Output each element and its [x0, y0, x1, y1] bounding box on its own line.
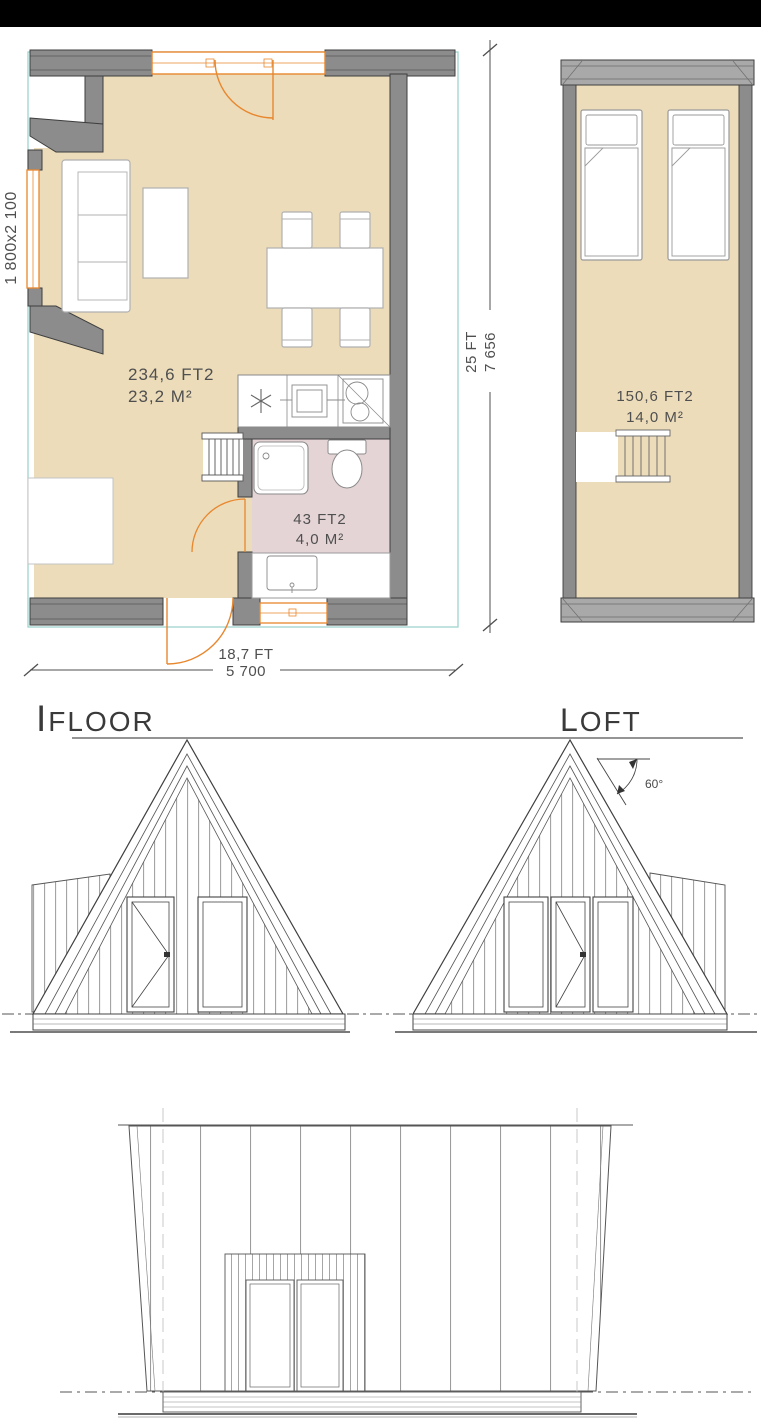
- wall-left-upper: [85, 76, 103, 124]
- bathroom-area-m: 4,0 M²: [296, 531, 345, 548]
- door-handle: [164, 952, 170, 957]
- window-dimension-label: 1 800x2 100: [3, 191, 20, 285]
- rear-elevation: 60°: [395, 740, 757, 1032]
- rear-door: [551, 897, 590, 1012]
- window-jamb-lower: [28, 288, 42, 306]
- wall-left-step-upper: [30, 118, 103, 152]
- living-area-ft: 234,6 FT2: [128, 365, 215, 384]
- wall-right: [390, 74, 407, 598]
- bed-blanket: [585, 148, 638, 256]
- shower: [254, 442, 308, 494]
- wall-bottom-left: [30, 598, 163, 625]
- wardrobe: [28, 478, 113, 564]
- wall-bottom-right: [327, 598, 407, 625]
- bed-pillow: [586, 115, 637, 145]
- window-jamb-upper: [28, 150, 42, 170]
- toilet-bowl: [332, 450, 362, 488]
- roof-angle-label: 60°: [645, 777, 663, 791]
- wall-bathroom-left-lower: [238, 552, 252, 598]
- chair: [282, 308, 312, 347]
- roof-angle-annotation: 60°: [597, 758, 663, 805]
- loft-title: LOFT: [560, 702, 642, 738]
- loft-plan: 150,6 FT2 14,0 M²: [561, 60, 754, 622]
- first-floor-plan: 234,6 FT2 23,2 M² 43 FT2 4,0 M²: [27, 50, 458, 664]
- stairs-first-floor: [202, 433, 243, 481]
- loft-wall-bottom-band: [561, 598, 754, 622]
- coffee-table: [143, 188, 188, 278]
- chair: [282, 212, 312, 248]
- loft-wall-left: [563, 85, 576, 598]
- bed-pillow: [673, 115, 724, 145]
- rear-window-left: [504, 897, 548, 1012]
- door-handle: [580, 952, 586, 957]
- bed-blanket: [672, 148, 725, 256]
- base-platform: [413, 1014, 727, 1030]
- plan-labels: IFLOOR LOFT: [36, 698, 743, 739]
- base-platform: [33, 1014, 345, 1030]
- kitchen-counter: [238, 375, 390, 427]
- chair: [340, 308, 370, 347]
- side-wall: [129, 1126, 611, 1391]
- loft-wall-top-band: [561, 60, 754, 85]
- architectural-drawing-page: 234,6 FT2 23,2 M² 43 FT2 4,0 M² 1 800x2 …: [0, 0, 761, 1427]
- loft-area-ft: 150,6 FT2: [616, 388, 693, 405]
- bath-sink: [267, 556, 317, 590]
- loft-wall-right: [739, 85, 752, 598]
- loft-area-m: 14,0 M²: [626, 409, 684, 426]
- entry-door-right: [297, 1280, 343, 1391]
- depth-ft-label: 25 FT: [463, 331, 480, 373]
- bathroom-area-ft: 43 FT2: [293, 511, 347, 528]
- drawing-canvas: 234,6 FT2 23,2 M² 43 FT2 4,0 M² 1 800x2 …: [0, 0, 761, 1427]
- sofa-cushions: [78, 172, 127, 300]
- chair: [340, 212, 370, 248]
- width-ft-label: 18,7 FT: [218, 646, 273, 663]
- width-mm-label: 5 700: [226, 663, 266, 680]
- top-black-bar: [0, 0, 761, 27]
- wall-bottom-mid: [233, 598, 260, 625]
- entry-door-left: [246, 1280, 294, 1391]
- side-elevation: [60, 1108, 752, 1417]
- dining-table: [267, 248, 383, 308]
- stair-landing: [576, 432, 618, 482]
- front-door: [127, 897, 174, 1012]
- entrance-porch: [225, 1254, 365, 1391]
- wall-top-left: [30, 50, 152, 76]
- front-window: [198, 897, 247, 1012]
- wall-top-right: [325, 50, 455, 76]
- living-area-m: 23,2 M²: [128, 387, 193, 406]
- depth-mm-label: 7 656: [482, 332, 499, 372]
- first-floor-title: IFLOOR: [36, 698, 155, 739]
- rear-window-right: [593, 897, 633, 1012]
